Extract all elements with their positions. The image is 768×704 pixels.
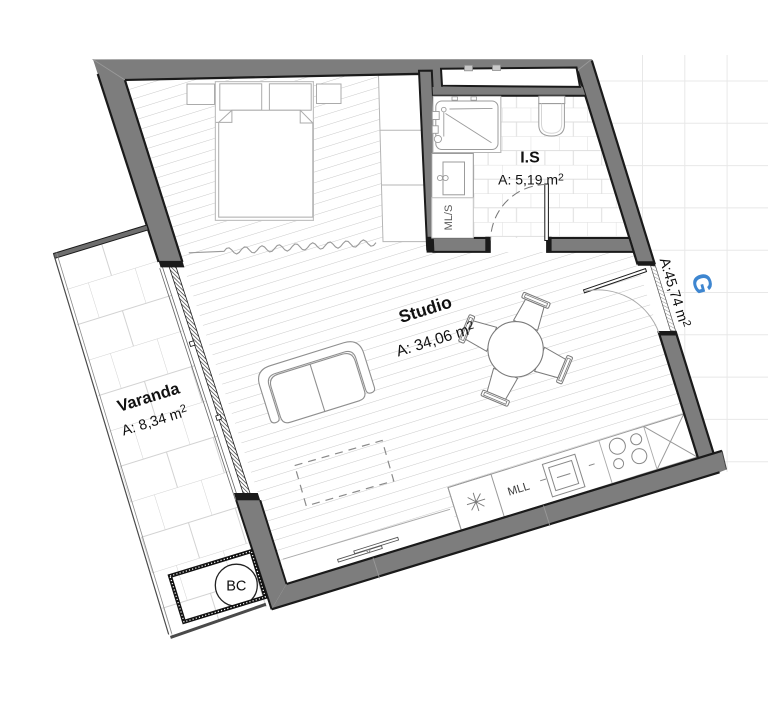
svg-text:I.S: I.S xyxy=(520,150,540,167)
svg-text:BC: BC xyxy=(226,579,246,595)
svg-text:A: 5,19 m2: A: 5,19 m2 xyxy=(498,172,564,188)
svg-text:ML/S: ML/S xyxy=(443,205,455,231)
